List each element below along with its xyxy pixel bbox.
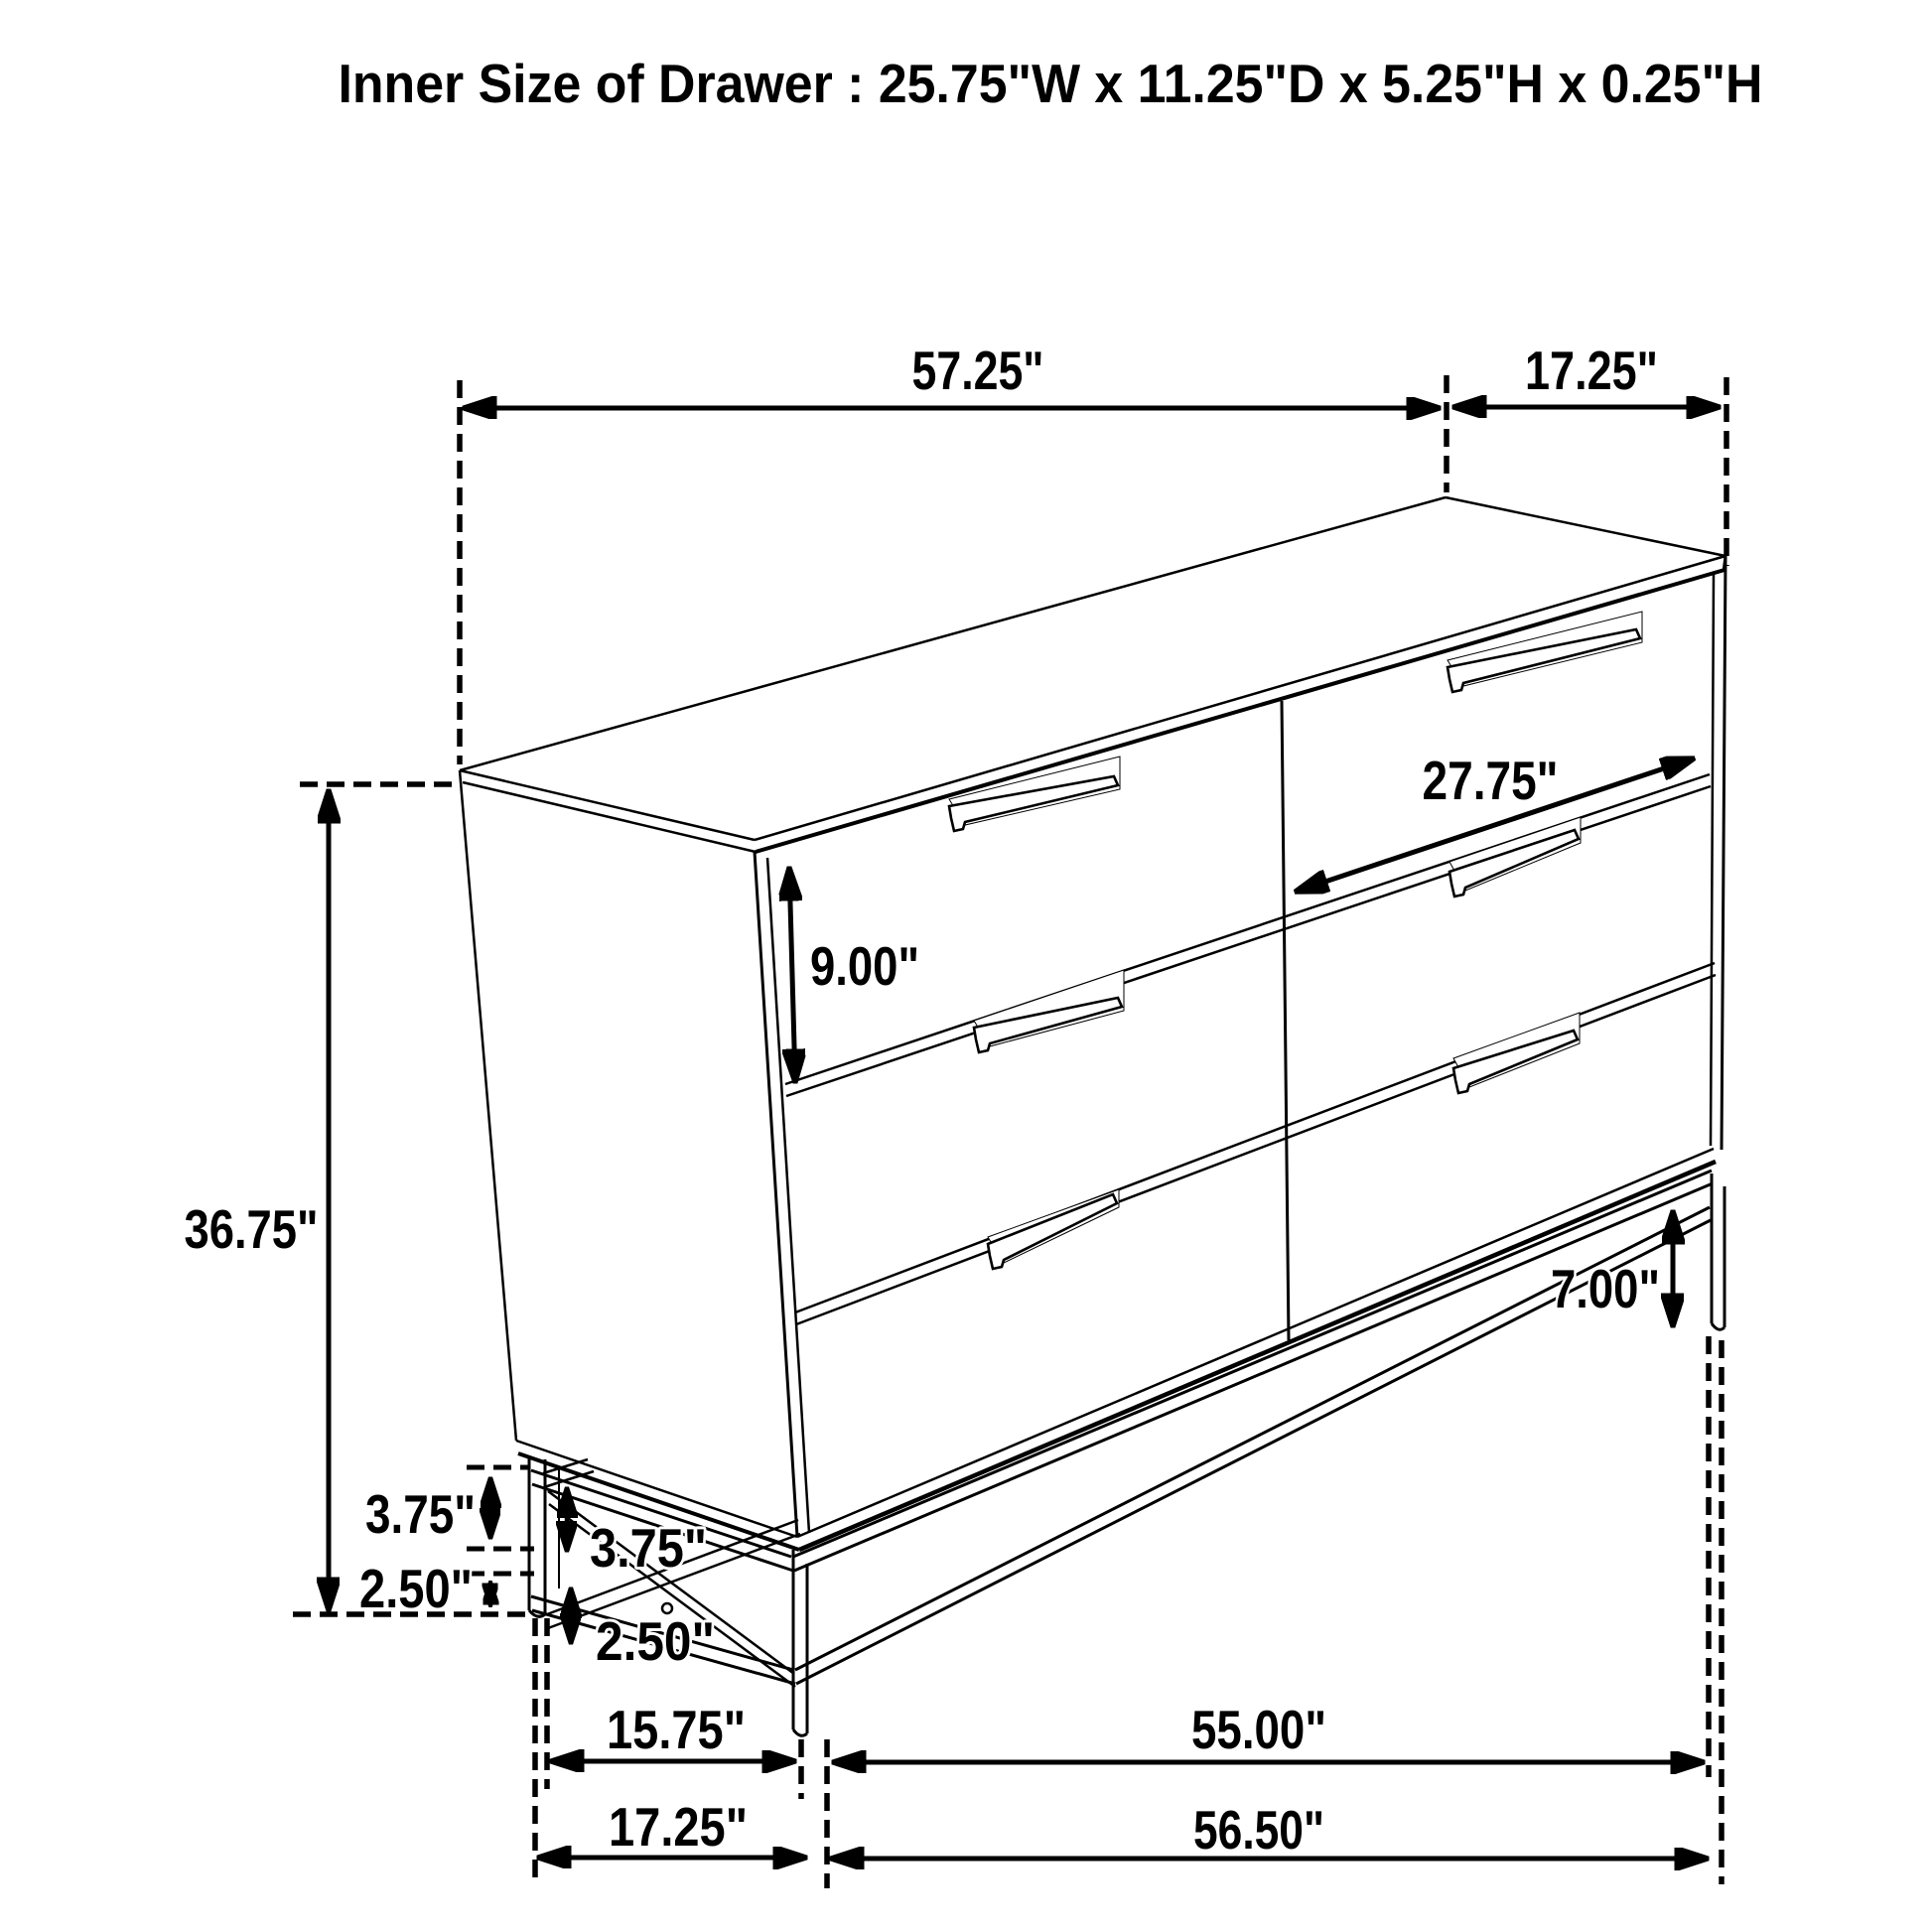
svg-text:Inner Size of Drawer : 25.75"W: Inner Size of Drawer : 25.75"W x 11.25"D… [339, 53, 1763, 114]
svg-text:17.25": 17.25" [1525, 340, 1658, 401]
svg-text:36.75": 36.75" [185, 1198, 319, 1260]
svg-text:27.75": 27.75" [1423, 750, 1559, 811]
svg-text:7.00": 7.00" [1551, 1258, 1660, 1319]
svg-text:2.50": 2.50" [359, 1558, 473, 1619]
svg-text:9.00": 9.00" [810, 935, 919, 997]
svg-text:56.50": 56.50" [1193, 1799, 1324, 1861]
svg-text:3.75": 3.75" [590, 1517, 707, 1579]
svg-text:15.75": 15.75" [607, 1699, 746, 1760]
svg-text:55.00": 55.00" [1191, 1699, 1326, 1760]
svg-text:57.25": 57.25" [912, 340, 1044, 401]
svg-text:2.50": 2.50" [596, 1610, 715, 1672]
svg-text:17.25": 17.25" [609, 1796, 748, 1858]
svg-text:3.75": 3.75" [365, 1483, 476, 1545]
